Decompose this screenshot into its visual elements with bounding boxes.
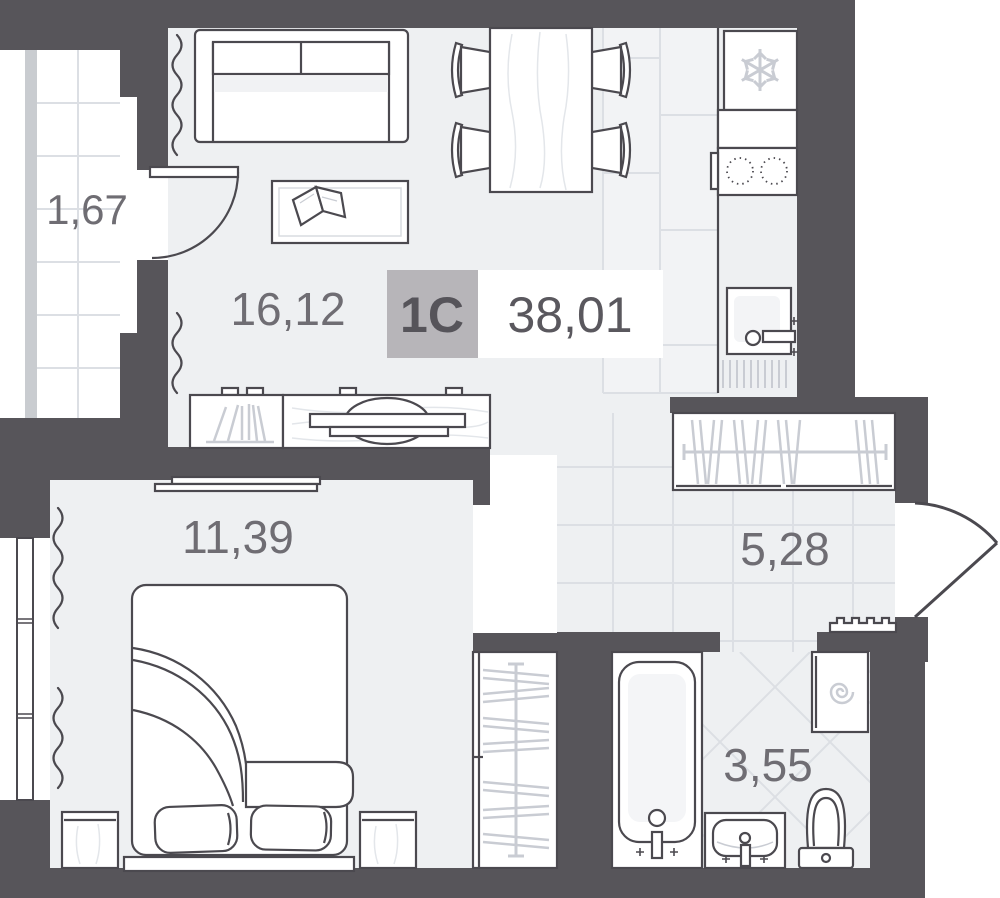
tub-drain bbox=[649, 810, 665, 826]
wardrobe-bedroom bbox=[473, 652, 557, 868]
wardrobe-hallway bbox=[673, 413, 895, 490]
fridge bbox=[724, 31, 797, 110]
kitchen-sink bbox=[727, 288, 798, 356]
bed bbox=[124, 585, 354, 871]
bedroom-window bbox=[17, 538, 33, 800]
dining-chair bbox=[592, 43, 630, 97]
tv-console bbox=[190, 388, 490, 448]
floor-plan: 1,67 16,12 11,39 5,28 3,55 1С 38,01 bbox=[0, 0, 1000, 898]
bedroom-tv-icon bbox=[155, 477, 320, 491]
faucet-icon bbox=[763, 331, 795, 342]
nightstand-left bbox=[62, 812, 118, 868]
floor-plan-page: 1,67 16,12 11,39 5,28 3,55 1С 38,01 bbox=[0, 0, 1000, 898]
room-area-bathroom: 3,55 bbox=[723, 739, 813, 791]
room-area-bedroom: 11,39 bbox=[182, 511, 294, 563]
sofa bbox=[195, 30, 408, 142]
room-area-balcony: 1,67 bbox=[46, 186, 128, 233]
stove-handle bbox=[711, 153, 718, 189]
stove bbox=[711, 148, 797, 195]
badge-area-label: 38,01 bbox=[507, 287, 632, 343]
bathroom-sink bbox=[705, 813, 785, 868]
room-area-hallway: 5,28 bbox=[740, 523, 830, 575]
washing-machine bbox=[812, 652, 868, 732]
dining-chair bbox=[592, 123, 630, 177]
pillow bbox=[251, 805, 332, 850]
badge-type-label: 1С bbox=[400, 287, 464, 343]
balcony-glazing bbox=[25, 50, 37, 418]
dining-chair bbox=[452, 43, 490, 97]
kitchen-cabinet bbox=[718, 110, 797, 148]
room-area-living-kitchen: 16,12 bbox=[230, 283, 345, 335]
entrance-door-opening bbox=[895, 503, 928, 617]
nightstand-right bbox=[360, 812, 416, 868]
sofa-seat-shade bbox=[214, 76, 388, 92]
bookshelf bbox=[190, 395, 283, 448]
faucet-icon bbox=[741, 845, 750, 866]
pillow bbox=[154, 805, 238, 854]
coffee-table bbox=[272, 181, 408, 243]
duvet-end bbox=[246, 762, 353, 807]
dining-table bbox=[490, 28, 592, 192]
bathtub bbox=[612, 652, 702, 868]
faucet-icon bbox=[652, 832, 662, 858]
headboard bbox=[124, 857, 354, 871]
sink-drain bbox=[740, 833, 750, 843]
sink-drain bbox=[746, 331, 760, 345]
balcony-door-opening bbox=[137, 170, 168, 260]
apartment-type-badge: 1С 38,01 bbox=[387, 270, 663, 358]
balcony-door-leaf bbox=[150, 167, 238, 177]
dining-chair bbox=[452, 123, 490, 177]
